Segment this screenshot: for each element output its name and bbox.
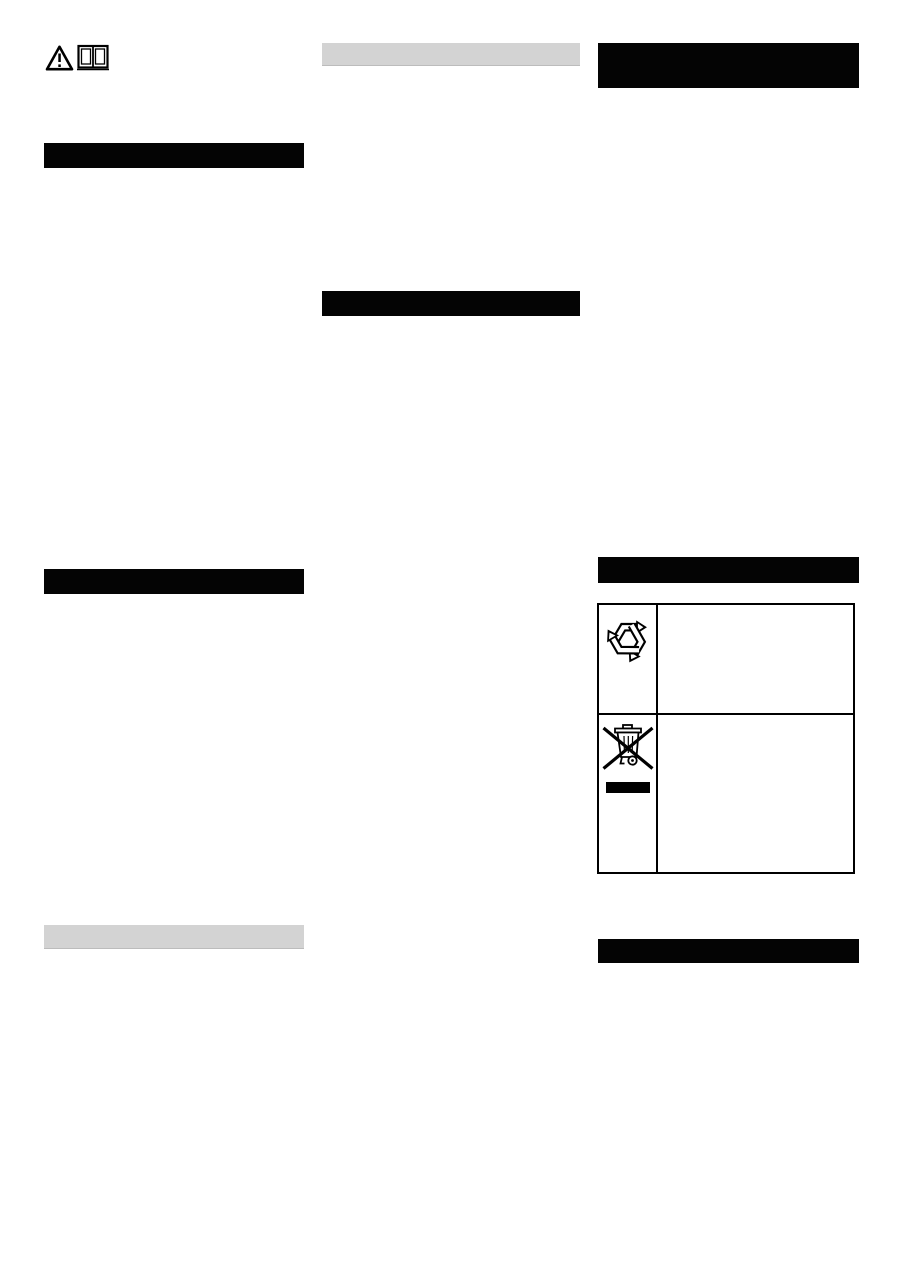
weee-crossed-out-bin-icon: [602, 722, 654, 796]
warning-triangle-icon: [45, 44, 74, 72]
description-cell: [658, 715, 853, 872]
section-header-middle-2: [322, 291, 580, 316]
table-row: [599, 605, 853, 715]
disposal-symbols-table: [597, 603, 855, 874]
symbol-cell: [599, 715, 658, 872]
weee-black-bar: [606, 782, 650, 793]
section-header-right-3: [598, 939, 859, 963]
manual-page: [0, 0, 900, 1273]
subsection-header-left-3: [44, 925, 304, 948]
description-cell: [658, 605, 853, 713]
section-header-right-2: [598, 557, 859, 583]
section-header-left-2: [44, 569, 304, 594]
table-row: [599, 715, 853, 872]
recycling-icon: [602, 613, 654, 663]
section-header-left-1: [44, 143, 304, 168]
symbol-cell: [599, 605, 658, 713]
safety-icon-group: [45, 42, 110, 72]
open-book-icon: [76, 42, 110, 72]
subsection-header-middle-1: [322, 43, 580, 65]
section-header-right-1: [598, 43, 859, 88]
